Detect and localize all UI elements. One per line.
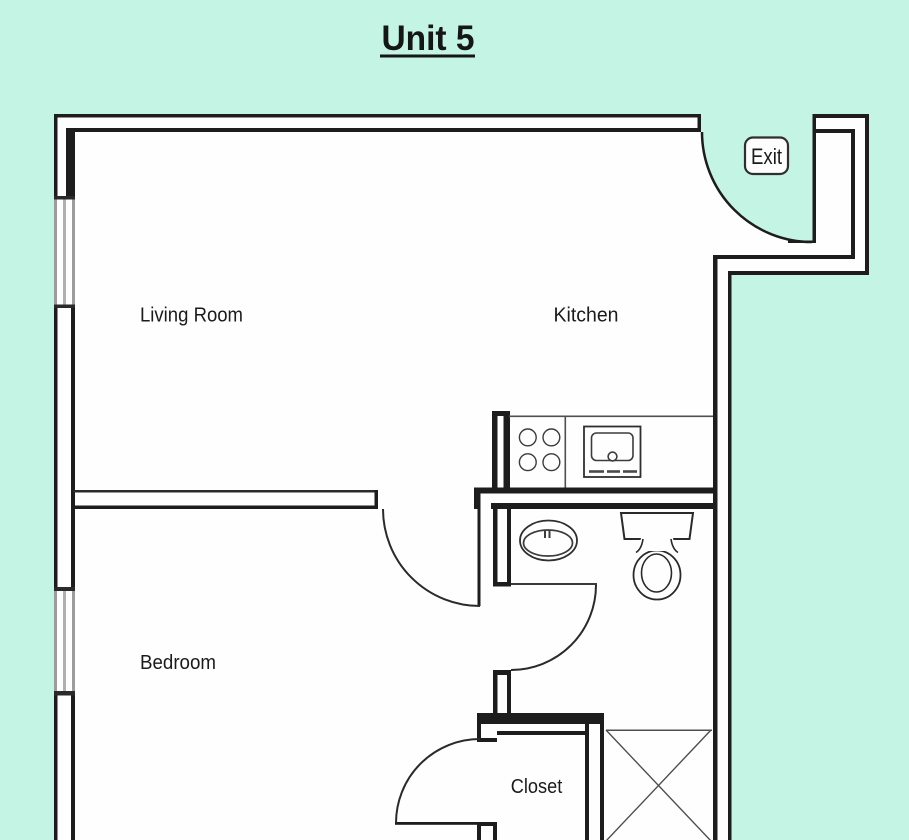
- svg-text:Bedroom: Bedroom: [140, 652, 216, 674]
- svg-text:Exit: Exit: [751, 144, 782, 169]
- svg-text:Kitchen: Kitchen: [554, 305, 619, 327]
- svg-text:Living Room: Living Room: [140, 305, 243, 327]
- svg-text:Closet: Closet: [511, 776, 563, 798]
- svg-text:Unit 5: Unit 5: [382, 19, 475, 58]
